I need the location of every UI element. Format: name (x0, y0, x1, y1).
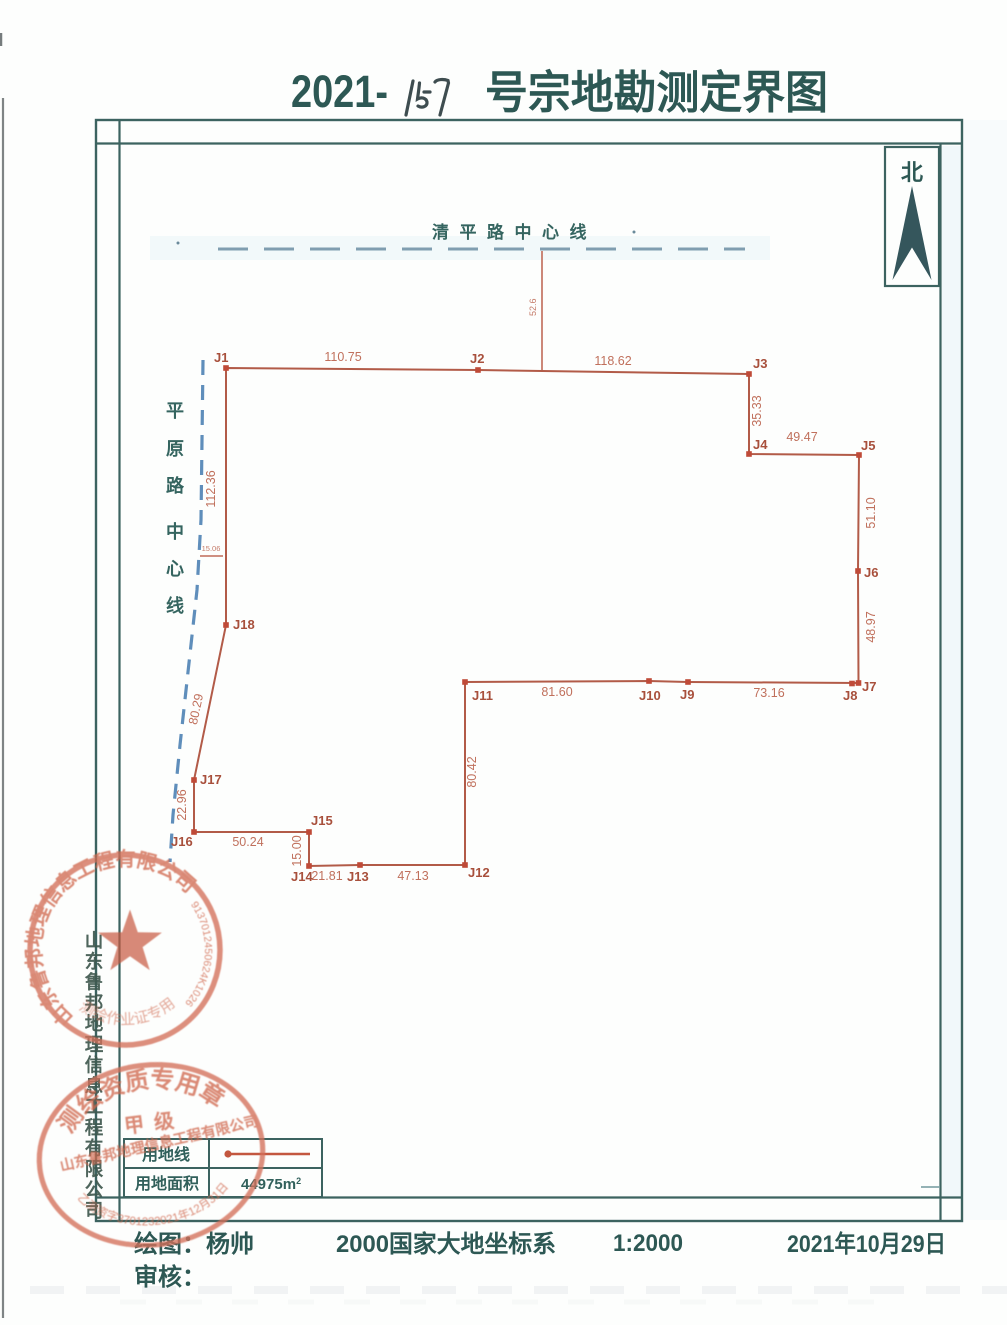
svg-text:118.62: 118.62 (594, 354, 631, 368)
svg-text:2021-: 2021- (291, 66, 388, 117)
svg-text:用地面积: 用地面积 (135, 1174, 199, 1193)
svg-text:J10: J10 (639, 688, 661, 703)
svg-text:J16: J16 (171, 834, 193, 849)
svg-text:47.13: 47.13 (397, 869, 428, 883)
svg-text:J12: J12 (468, 865, 490, 880)
svg-text:J11: J11 (472, 688, 493, 703)
svg-text:J18: J18 (233, 617, 255, 632)
svg-text:J8: J8 (843, 688, 857, 703)
svg-text:审核：: 审核： (134, 1263, 206, 1291)
svg-text:J2: J2 (470, 351, 484, 366)
svg-text:平: 平 (166, 401, 184, 421)
svg-text:J13: J13 (347, 869, 369, 884)
svg-text:112.36: 112.36 (204, 470, 218, 507)
svg-text:原: 原 (166, 439, 184, 459)
svg-text:J6: J6 (864, 565, 878, 580)
svg-text:心: 心 (166, 559, 184, 579)
svg-text:中: 中 (166, 521, 184, 542)
svg-text:1:2000: 1:2000 (613, 1230, 683, 1257)
svg-text:15.06: 15.06 (202, 544, 221, 553)
svg-text:J5: J5 (861, 438, 875, 453)
svg-text:北: 北 (901, 160, 923, 185)
svg-text:J4: J4 (753, 437, 768, 452)
svg-text:J3: J3 (753, 356, 767, 371)
svg-text:48.97: 48.97 (864, 611, 878, 642)
svg-text:52.6: 52.6 (528, 298, 538, 316)
svg-text:15.00: 15.00 (290, 835, 304, 866)
svg-text:鲁: 鲁 (84, 972, 104, 993)
svg-text:35.33: 35.33 (750, 395, 764, 426)
svg-text:110.75: 110.75 (324, 350, 361, 364)
svg-text:信: 信 (85, 1055, 104, 1076)
svg-text:2000国家大地坐标系: 2000国家大地坐标系 (336, 1230, 556, 1258)
svg-text:51.10: 51.10 (864, 497, 878, 528)
svg-text:路: 路 (166, 475, 185, 496)
svg-text:线: 线 (166, 595, 184, 616)
svg-text:J14: J14 (291, 869, 313, 884)
svg-text:22.96: 22.96 (175, 789, 189, 820)
svg-text:50.24: 50.24 (232, 835, 263, 849)
svg-text:81.60: 81.60 (541, 685, 572, 699)
svg-text:J9: J9 (680, 687, 694, 702)
svg-text:清平路中心线: 清平路中心线 (432, 222, 597, 242)
svg-text:2021年10月29日: 2021年10月29日 (787, 1230, 946, 1258)
svg-text:J1: J1 (214, 350, 228, 365)
svg-text:J7: J7 (862, 679, 876, 694)
svg-text:J15: J15 (311, 813, 333, 828)
svg-text:J17: J17 (200, 772, 222, 787)
svg-text:东: 东 (85, 951, 104, 972)
svg-text:21.81: 21.81 (311, 869, 342, 883)
svg-text:49.47: 49.47 (786, 430, 817, 444)
svg-text:73.16: 73.16 (753, 686, 784, 700)
svg-text:号宗地勘测定界图: 号宗地勘测定界图 (485, 67, 828, 118)
svg-text:80.42: 80.42 (465, 756, 479, 787)
